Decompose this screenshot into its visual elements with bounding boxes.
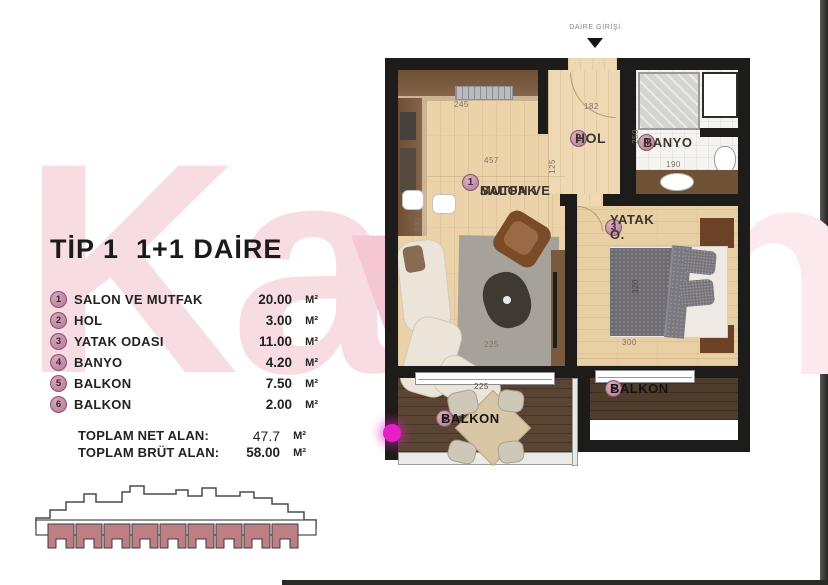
dim-banyo-width: 190	[666, 160, 681, 169]
room-number-badge: 6	[50, 396, 67, 413]
total-net-row: TOPLAM NET ALAN: 47.7 M²	[78, 427, 318, 444]
yatak-door-gap	[577, 194, 603, 206]
area-unit: M²	[292, 336, 318, 348]
sofa-cushion	[402, 244, 426, 273]
room-number-badge: 1	[50, 291, 67, 308]
salon-label-line2: MUTFAK	[480, 183, 537, 199]
dim-bed-height: 320	[631, 279, 640, 294]
tv	[553, 272, 557, 348]
photo-edge-bottom	[282, 580, 828, 585]
area-value: 11.00	[238, 334, 292, 349]
oven	[400, 148, 416, 192]
room-number-badge: 2	[50, 312, 67, 329]
dim-yatak-width: 300	[622, 338, 637, 347]
legend-row: 2 HOL 3.00 M²	[50, 310, 318, 331]
total-brut-row: TOPLAM BRÜT ALAN: 58.00 M²	[78, 444, 318, 461]
legend-row: 6 BALKON 2.00 M²	[50, 394, 318, 415]
room-label: BALKON	[74, 397, 238, 412]
bar-stool	[402, 190, 424, 210]
area-unit: M²	[292, 357, 318, 369]
legend-row: 4 BANYO 4.20 M²	[50, 352, 318, 373]
room-name: BANYO	[643, 135, 692, 150]
wall-salon-yatak	[565, 194, 577, 378]
wall-shower-stub	[700, 128, 738, 137]
coffee-table-decor	[503, 296, 511, 304]
bar-stool	[432, 194, 456, 214]
room-name: HOL	[575, 130, 606, 146]
watermark-magenta-dot	[383, 424, 401, 442]
room-name: BALKON	[441, 411, 500, 426]
area-unit: M²	[292, 378, 318, 390]
nightstand	[700, 218, 734, 248]
wall-mid-right	[603, 194, 750, 206]
room-name: YATAK O.	[610, 212, 654, 242]
legend-totals: TOPLAM NET ALAN: 47.7 M² TOPLAM BRÜT ALA…	[50, 427, 318, 461]
dim-banyo-height: 250	[631, 129, 640, 144]
room-label: SALON VE MUTFAK	[74, 292, 238, 307]
shower	[638, 72, 700, 130]
entrance-arrow-icon	[587, 38, 603, 48]
pillow	[683, 248, 717, 275]
legend-panel: TİP 1 1+1 DAİRE 1 SALON VE MUTFAK 20.00 …	[50, 234, 318, 461]
room-number-badge: 4	[50, 354, 67, 371]
wall-left	[385, 58, 398, 460]
wall-top-banyo	[617, 58, 750, 70]
dim-salon-width: 457	[484, 156, 499, 165]
total-brut-label: TOPLAM BRÜT ALAN:	[78, 445, 230, 460]
total-net-value: 47.7	[230, 428, 280, 444]
entrance-label: DAİRE GİRİŞİ	[552, 24, 638, 31]
legend-row: 3 YATAK ODASI 11.00 M²	[50, 331, 318, 352]
dim-salon-height: 490	[413, 217, 422, 232]
area-value: 20.00	[238, 292, 292, 307]
total-brut-value: 58.00	[230, 445, 280, 460]
dim-hol-height: 125	[548, 159, 557, 174]
balcony-chair	[497, 388, 526, 413]
guide-line	[577, 358, 738, 359]
photo-edge-right	[820, 0, 828, 585]
legend-row: 5 BALKON 7.50 M²	[50, 373, 318, 394]
kitchen-counter-edge-left	[422, 98, 427, 236]
room-number-badge: 5	[50, 375, 67, 392]
dim-kitchen-width: 245	[454, 100, 469, 109]
total-net-unit: M²	[280, 430, 306, 442]
room-label: BALKON	[74, 376, 238, 391]
area-unit: M²	[292, 294, 318, 306]
wall-kitchen-hol	[538, 58, 548, 134]
area-value: 2.00	[238, 397, 292, 412]
floorplan-page: { "title": "TİP 1 1+1 DAİRE", "legend": …	[0, 0, 828, 585]
legend-row: 1 SALON VE MUTFAK 20.00 M²	[50, 289, 318, 310]
building-elevation	[26, 482, 326, 564]
fridge	[400, 112, 416, 140]
dim-hol-width: 182	[584, 102, 599, 111]
area-unit: M²	[292, 315, 318, 327]
floor-plan: DAİRE GİRİŞİ	[370, 20, 770, 485]
wall-right	[738, 58, 750, 452]
room-number-circle: 1	[462, 174, 479, 191]
area-value: 3.00	[238, 313, 292, 328]
highlighted-floor-blocks	[48, 524, 298, 548]
entrance-threshold	[568, 58, 617, 70]
area-value: 7.50	[238, 376, 292, 391]
area-unit: M²	[292, 399, 318, 411]
kitchen-sink-unit	[455, 86, 513, 100]
legend-rows: 1 SALON VE MUTFAK 20.00 M² 2 HOL 3.00 M²…	[50, 289, 318, 415]
area-value: 4.20	[238, 355, 292, 370]
page-title: TİP 1 1+1 DAİRE	[50, 234, 318, 265]
dim-salon-bottom: 225	[484, 340, 499, 349]
dim-balkon5-width: 225	[474, 382, 489, 391]
room-label: HOL	[74, 313, 238, 328]
room-label: BANYO	[74, 355, 238, 370]
wall-balkon6-bottom	[578, 440, 750, 452]
room-number-badge: 3	[50, 333, 67, 350]
room-label: YATAK ODASI	[74, 334, 238, 349]
total-brut-unit: M²	[280, 447, 306, 459]
pillow	[679, 279, 715, 308]
sink	[660, 173, 694, 191]
total-net-label: TOPLAM NET ALAN:	[78, 428, 230, 443]
room-name: BALKON	[610, 381, 669, 396]
washing-machine	[702, 72, 738, 118]
